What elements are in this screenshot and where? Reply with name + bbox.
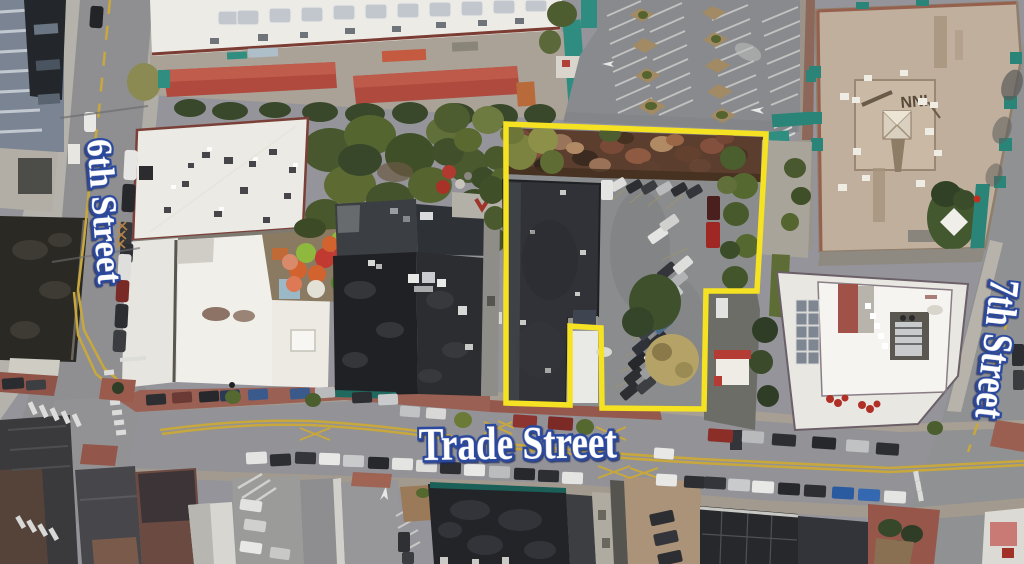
svg-text:Trade Street: Trade Street <box>418 416 617 471</box>
